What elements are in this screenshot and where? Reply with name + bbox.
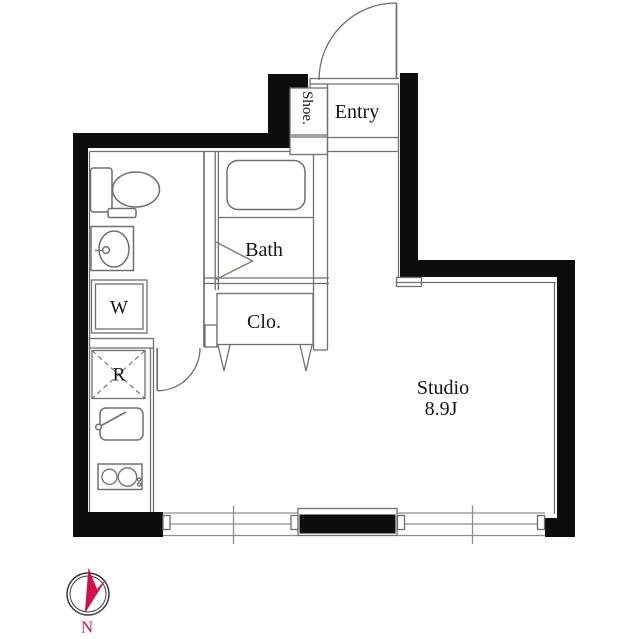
washer-space: W <box>92 280 148 333</box>
wall-segment <box>73 512 163 537</box>
wall-segment <box>73 133 88 537</box>
wall-segment <box>557 260 575 537</box>
hanger-icon <box>218 345 230 371</box>
window-sash-cap <box>163 516 170 530</box>
hanger-icon <box>300 345 312 371</box>
window-sash-cap <box>538 516 545 530</box>
washroom-door-swing-arc <box>157 348 200 391</box>
kitchen: R <box>90 339 154 513</box>
label-bath: Bath <box>245 239 283 261</box>
label-compass-north: N <box>81 618 93 637</box>
floor-plan-svg: Entry Shoe. W <box>0 0 640 639</box>
label-washer: W <box>110 298 128 319</box>
stove <box>98 464 142 490</box>
entry-door <box>319 3 397 80</box>
kitchen-counter-divider <box>90 339 154 349</box>
shoe-cabinet: Shoe. <box>290 88 328 155</box>
wall-segment <box>400 73 418 277</box>
entry-step-lines <box>328 138 400 152</box>
toilet <box>91 168 160 218</box>
vanity-sink <box>91 227 134 271</box>
window-south-right <box>397 506 545 545</box>
label-shoe: Shoe. <box>299 91 315 125</box>
washroom-door <box>157 348 200 391</box>
kitchen-sink <box>96 408 143 440</box>
label-studio-size: 8.9J <box>425 398 458 420</box>
label-studio-name: Studio <box>417 377 469 399</box>
floor-plan-page: Entry Shoe. W <box>0 0 640 639</box>
label-closet: Clo. <box>247 311 281 333</box>
window-sash-cap <box>398 516 405 530</box>
refrigerator-space: R <box>92 351 145 399</box>
studio-room: Studio 8.9J <box>417 377 469 420</box>
window-mullion-wall <box>298 509 397 536</box>
toilet-bowl <box>113 172 160 207</box>
window-south-left <box>163 506 298 545</box>
compass: N <box>67 568 109 637</box>
window-sash-cap <box>291 516 298 530</box>
label-refrigerator: R <box>113 365 126 386</box>
bathroom: Bath <box>204 152 329 290</box>
entry-door-swing-arc <box>319 3 397 80</box>
toilet-control <box>108 209 136 218</box>
vanity-tap-icon <box>103 247 110 254</box>
wall-end-cap <box>205 325 217 347</box>
bathtub <box>227 161 305 210</box>
wall-segment <box>400 260 575 277</box>
closet: Clo. <box>217 294 313 372</box>
wall-segment <box>545 518 575 537</box>
wall-segment <box>73 133 290 148</box>
label-entry: Entry <box>335 101 379 123</box>
toilet-tank <box>91 168 113 212</box>
entry-side-cabinet <box>290 137 328 155</box>
